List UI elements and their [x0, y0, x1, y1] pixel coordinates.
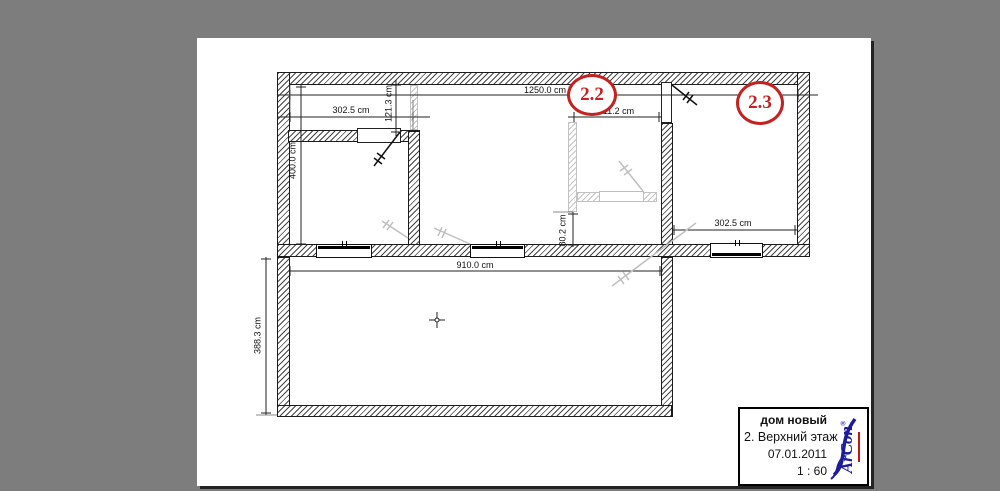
room-badge-2-3[interactable]: 2.3 — [736, 81, 784, 125]
dim-label-left-room-depth[interactable]: 400.0 cm — [288, 125, 299, 197]
room-badge-2-2[interactable]: 2.2 — [567, 74, 617, 116]
title-project: дом новый — [744, 413, 827, 427]
extension-lines — [256, 85, 573, 415]
dim-label-corridor-depth[interactable]: 121.3 cm — [384, 68, 395, 140]
dim-ticks — [261, 85, 798, 413]
phantom-swing-a — [619, 161, 643, 191]
phantom-handle — [438, 227, 446, 238]
arcon-logo-red-tagline — [858, 432, 860, 462]
dim-label-bottom-room-width[interactable]: 910.0 cm — [439, 260, 511, 271]
room-badge-label: 2.3 — [748, 92, 772, 114]
arcon-logo-text: ArCon® — [837, 421, 856, 473]
arcon-logo: ArCon® — [829, 411, 865, 482]
phantom-swing-d — [434, 228, 470, 244]
dim-label-bottom-room-depth[interactable]: 388.3 cm — [253, 300, 264, 372]
dim-label-right-room-width[interactable]: 302.5 cm — [697, 218, 769, 229]
dim-label-wall-gap[interactable]: 80.2 cm — [558, 196, 569, 266]
title-scale: 1 : 60 — [744, 464, 827, 478]
title-date: 07.01.2011 — [744, 447, 827, 461]
room-badge-label: 2.2 — [580, 84, 604, 106]
dim-label-top-left-width[interactable]: 302.5 cm — [315, 105, 387, 116]
arcon-logo-text-wrap: ArCon® — [836, 412, 856, 482]
center-crosshair-icon — [429, 312, 445, 328]
arcon-drawing-view: 302.5 cm 1250.0 cm 211.2 cm 121.3 cm 400… — [0, 0, 1000, 491]
registered-mark: ® — [839, 421, 847, 426]
title-floor: 2. Верхний этаж — [744, 430, 827, 444]
title-block[interactable]: дом новый 2. Верхний этаж 07.01.2011 1 :… — [738, 407, 869, 486]
phantom-swing-b — [612, 223, 696, 286]
